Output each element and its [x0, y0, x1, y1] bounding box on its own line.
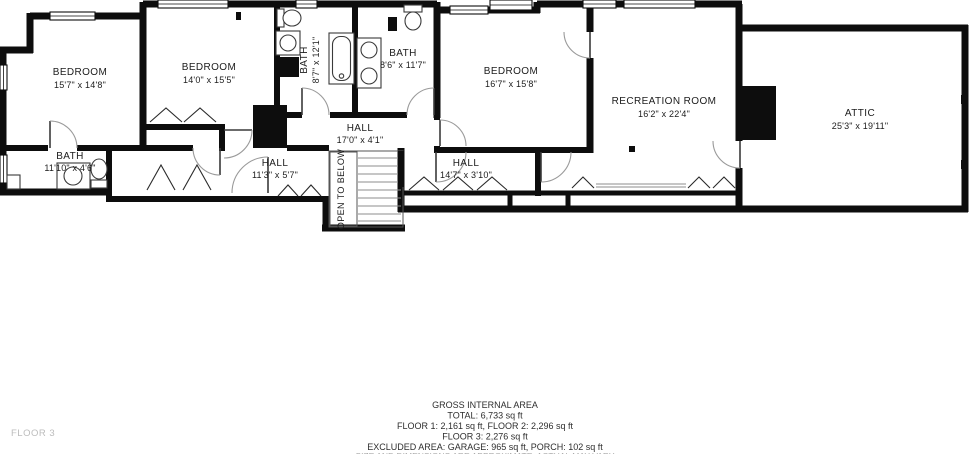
room-label-bath1: BATH — [56, 151, 84, 162]
toilet-tank — [91, 180, 107, 188]
room-label-bath2: BATH — [299, 46, 310, 74]
door-bedroom3-west — [440, 120, 466, 146]
room-label-bath3: BATH — [389, 48, 417, 59]
room-dims-bedroom2: 14'0" x 15'5" — [183, 75, 235, 85]
wall-anchor-tick — [747, 25, 753, 31]
closet-hall2 — [278, 185, 321, 196]
sink-icon — [361, 68, 377, 84]
toilet-tank — [404, 5, 422, 12]
door-bath2 — [302, 88, 329, 115]
closet-corridor — [147, 165, 211, 190]
room-label-bedroom1: BEDROOM — [53, 67, 107, 78]
room-label-attic: ATTIC — [845, 108, 875, 119]
floorplan-svg: OPEN TO BELOW BEDROOM 15'7" x 14'8" BATH… — [0, 0, 970, 454]
room-dims-hall1: 17'0" x 4'1" — [337, 135, 384, 145]
door-bedroom2 — [224, 130, 252, 158]
small-fixture — [7, 175, 20, 189]
room-label-recreation: RECREATION ROOM — [612, 96, 717, 107]
window — [0, 155, 7, 183]
stair-rail — [398, 151, 404, 187]
footer-total: TOTAL: 6,733 sq ft — [447, 411, 523, 421]
room-dims-hall2: 11'3" x 5'7" — [252, 170, 298, 180]
footer-gross-internal-area: GROSS INTERNAL AREA — [432, 400, 538, 410]
chimney-block-center — [253, 105, 287, 148]
room-label-bedroom2: BEDROOM — [182, 62, 236, 73]
room-dims-bath3: 8'6" x 11'7" — [380, 60, 426, 70]
room-dims-attic: 25'3" x 19'11" — [832, 121, 889, 131]
window — [50, 12, 95, 20]
door-bedroom1 — [50, 121, 77, 148]
closet-bedroom2 — [150, 108, 216, 122]
sink-icon — [361, 42, 377, 58]
door-hall-corridor — [193, 148, 220, 175]
wall-anchor-tick — [629, 146, 635, 152]
door-bath3 — [407, 88, 434, 115]
room-dims-bath2: 8'7" x 12'1" — [311, 37, 321, 84]
walls — [0, 2, 968, 231]
window — [583, 0, 616, 8]
footer-area-summary: GROSS INTERNAL AREA TOTAL: 6,733 sq ft F… — [355, 400, 614, 454]
closet-rod — [596, 184, 686, 187]
stair-treads — [358, 158, 401, 221]
room-dims-bedroom1: 15'7" x 14'8" — [54, 80, 106, 90]
sink-icon — [280, 35, 296, 51]
solid-block-bath2 — [388, 17, 397, 31]
door-rec-attic — [713, 141, 740, 168]
room-label-hall1: HALL — [347, 123, 374, 134]
wall-anchor-tick — [236, 12, 241, 20]
chimney-block-attic — [739, 86, 776, 140]
room-dims-recreation: 16'2" x 22'4" — [638, 109, 690, 119]
room-dims-bedroom3: 16'7" x 15'8" — [485, 79, 537, 89]
window — [158, 0, 228, 8]
floor-label: FLOOR 3 — [11, 428, 55, 439]
window — [0, 65, 7, 90]
tub-drain — [339, 74, 343, 78]
staircase: OPEN TO BELOW — [329, 149, 404, 229]
window — [450, 6, 488, 14]
footer-floor3: FLOOR 3: 2,276 sq ft — [442, 432, 528, 442]
solid-block-bath — [277, 57, 299, 77]
window — [624, 0, 695, 8]
wall-anchor-tick — [961, 95, 968, 104]
room-dims-hall3: 14'7" x 3'10" — [440, 170, 492, 180]
wall-anchor-tick — [872, 206, 878, 212]
door-hall3-east — [541, 152, 571, 182]
room-label-hall2: HALL — [262, 158, 289, 169]
room-label-hall3: HALL — [453, 158, 480, 169]
toilet-icon — [283, 10, 301, 26]
footer-floor1-floor2: FLOOR 1: 2,161 sq ft, FLOOR 2: 2,296 sq … — [397, 421, 574, 431]
wall-anchor-tick — [961, 160, 968, 169]
toilet-icon — [405, 12, 421, 30]
window — [490, 0, 532, 10]
room-label-bedroom3: BEDROOM — [484, 66, 538, 77]
floorplan-page: OPEN TO BELOW BEDROOM 15'7" x 14'8" BATH… — [0, 0, 970, 454]
open-to-below-label: OPEN TO BELOW — [336, 149, 346, 229]
door-bedroom3-rec — [564, 32, 590, 58]
room-dims-bath1: 11'10" x 4'6" — [44, 163, 95, 173]
window — [296, 0, 317, 8]
closet-rec — [572, 177, 735, 188]
